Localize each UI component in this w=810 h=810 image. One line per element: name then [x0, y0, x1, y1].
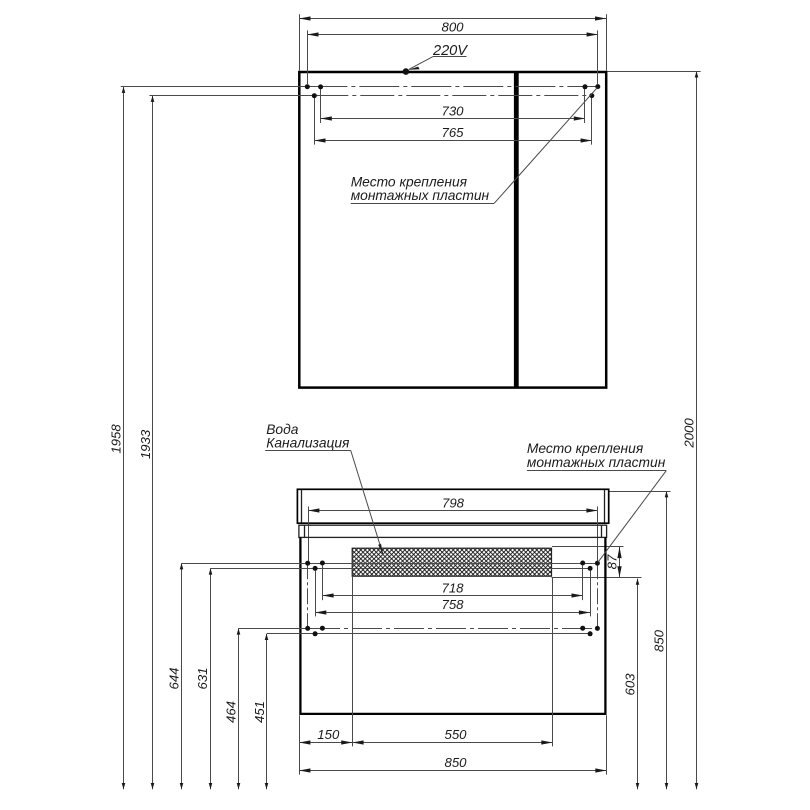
- svg-text:87: 87: [605, 554, 620, 569]
- svg-text:464: 464: [223, 701, 238, 723]
- svg-text:550: 550: [444, 727, 467, 742]
- svg-text:451: 451: [252, 701, 267, 723]
- svg-text:765: 765: [441, 125, 464, 140]
- svg-text:798: 798: [442, 495, 465, 510]
- svg-text:631: 631: [195, 667, 210, 689]
- svg-text:Место крепления: Место крепления: [527, 441, 644, 456]
- svg-text:850: 850: [444, 755, 467, 770]
- svg-text:1933: 1933: [138, 429, 153, 459]
- svg-text:758: 758: [441, 597, 464, 612]
- svg-text:850: 850: [652, 629, 667, 652]
- svg-text:800: 800: [441, 20, 464, 35]
- svg-text:150: 150: [317, 727, 340, 742]
- svg-text:718: 718: [441, 581, 464, 596]
- svg-text:монтажных пластин: монтажных пластин: [527, 455, 666, 470]
- svg-text:1958: 1958: [109, 424, 124, 454]
- svg-text:Канализация: Канализация: [266, 435, 350, 450]
- svg-text:730: 730: [441, 104, 464, 119]
- svg-text:2000: 2000: [681, 418, 696, 449]
- svg-text:644: 644: [167, 667, 182, 689]
- svg-text:603: 603: [623, 673, 638, 696]
- svg-text:монтажных пластин: монтажных пластин: [351, 188, 490, 203]
